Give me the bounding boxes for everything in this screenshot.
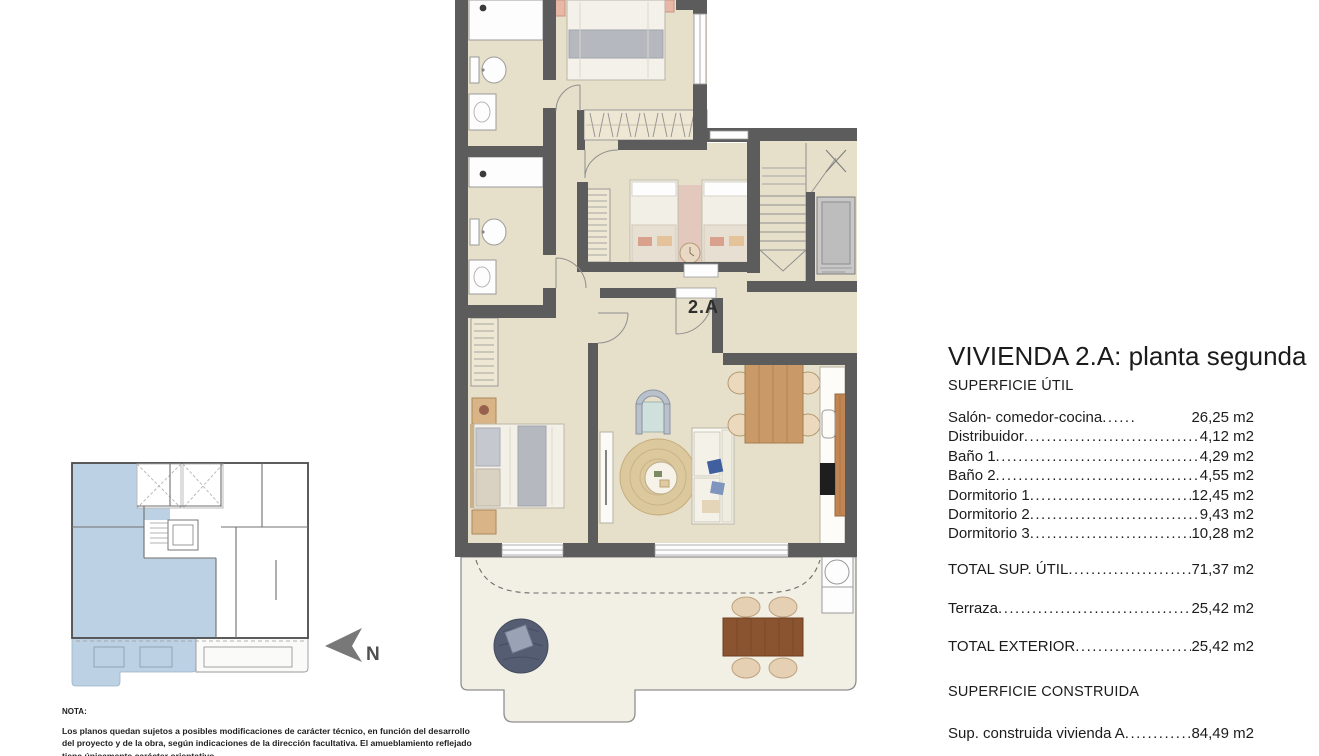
row-label: TOTAL SUP. ÚTIL	[948, 560, 1068, 579]
note-line: Los planos quedan sujetos a posibles mod…	[62, 725, 482, 737]
surface-row: Dormitorio 3 10,28 m2	[948, 524, 1254, 543]
dot-leader	[1030, 524, 1192, 543]
sofa	[692, 428, 734, 524]
surface-row: Baño 1 4,29 m2	[948, 447, 1254, 466]
coffee-table	[645, 462, 677, 494]
dot-leader	[998, 599, 1191, 618]
row-value: 25,42 m2	[1191, 599, 1254, 618]
north-arrow-icon	[325, 628, 362, 662]
surface-rows: Salón- comedor-cocina 26,25 m2 Distribui…	[948, 408, 1254, 544]
surface-row: Dormitorio 2 9,43 m2	[948, 505, 1254, 524]
elevator	[817, 197, 855, 274]
row-value: 9,43 m2	[1200, 505, 1254, 524]
note-line: tiene únicamente carácter orientativo.	[62, 750, 482, 756]
row-label: Baño 1	[948, 447, 996, 466]
row-value: 71,37 m2	[1191, 560, 1254, 579]
dot-leader	[1125, 724, 1192, 743]
note-heading: NOTA:	[62, 707, 482, 716]
terraza-row: Terraza 25,42 m2	[948, 599, 1254, 618]
shower-1	[469, 0, 543, 40]
dot-leader	[1075, 637, 1191, 656]
row-label: Distribuidor	[948, 427, 1024, 446]
note-block: NOTA: Los planos quedan sujetos a posibl…	[62, 707, 482, 756]
total-util-row: TOTAL SUP. ÚTIL 71,37 m2	[948, 560, 1254, 579]
row-value: 26,25 m2	[1191, 408, 1254, 427]
tv-unit	[600, 432, 613, 523]
row-value: 25,42 m2	[1191, 637, 1254, 656]
row-value: 84,49 m2	[1191, 724, 1254, 743]
surface-row: Baño 2 4,55 m2	[948, 466, 1254, 485]
row-label: Salón- comedor-cocina	[948, 408, 1102, 427]
page: 2.A N VIVIENDA 2.A: planta segunda SUPER…	[0, 0, 1319, 756]
row-label: Sup. construida vivienda A	[948, 724, 1125, 743]
section-superficie-construida: SUPERFICIE CONSTRUIDA	[948, 684, 1254, 700]
sink-icon	[469, 94, 496, 130]
row-value: 4,29 m2	[1200, 447, 1254, 466]
row-label: Dormitorio 1	[948, 486, 1030, 505]
master-bed	[552, 0, 674, 80]
double-bed	[470, 424, 564, 508]
key-plan	[72, 463, 362, 686]
key-plan-lightwells	[137, 464, 223, 508]
dot-leader	[1024, 427, 1200, 446]
total-exterior-row: TOTAL EXTERIOR 25,42 m2	[948, 637, 1254, 656]
wardrobe-master	[584, 110, 707, 140]
twin-bed-b	[702, 180, 750, 262]
dot-leader	[996, 466, 1200, 485]
row-value: 10,28 m2	[1191, 524, 1254, 543]
dot-leader	[1068, 560, 1191, 579]
row-value: 4,55 m2	[1200, 466, 1254, 485]
north-label: N	[366, 644, 380, 666]
dot-leader	[1030, 486, 1192, 505]
toilet-icon	[470, 57, 506, 83]
sink-icon	[469, 260, 496, 294]
row-value: 12,45 m2	[1191, 486, 1254, 505]
section-superficie-util: SUPERFICIE ÚTIL	[948, 378, 1254, 394]
unit-number-label: 2.A	[688, 297, 719, 318]
dot-leader	[1102, 408, 1135, 427]
row-value: 4,12 m2	[1200, 427, 1254, 446]
construida-row: Sup. construida vivienda A 84,49 m2	[948, 724, 1254, 743]
row-label: TOTAL EXTERIOR	[948, 637, 1075, 656]
bedroom-twin	[583, 180, 750, 263]
terrace-pouf	[494, 619, 548, 673]
terrace-fixture	[822, 557, 853, 613]
surface-row: Salón- comedor-cocina 26,25 m2	[948, 408, 1254, 427]
twin-bed-a	[630, 180, 678, 262]
row-label: Terraza	[948, 599, 998, 618]
panel-title: VIVIENDA 2.A: planta segunda	[948, 341, 1254, 371]
main-floor-plan	[455, 0, 857, 722]
cooktop	[820, 463, 835, 495]
shower-2	[469, 157, 543, 187]
row-label: Dormitorio 3	[948, 524, 1030, 543]
terrace	[461, 557, 856, 722]
nightstand-bottom	[472, 510, 496, 534]
note-line: del proyecto y de la obra, según indicac…	[62, 737, 482, 749]
dot-leader	[1030, 505, 1200, 524]
round-table-clock	[680, 243, 700, 263]
surface-row: Dormitorio 1 12,45 m2	[948, 486, 1254, 505]
surface-row: Distribuidor 4,12 m2	[948, 427, 1254, 446]
row-label: Baño 2	[948, 466, 996, 485]
nightstand-top	[472, 398, 496, 424]
toilet-icon	[470, 219, 506, 245]
row-label: Dormitorio 2	[948, 505, 1030, 524]
dot-leader	[996, 447, 1200, 466]
